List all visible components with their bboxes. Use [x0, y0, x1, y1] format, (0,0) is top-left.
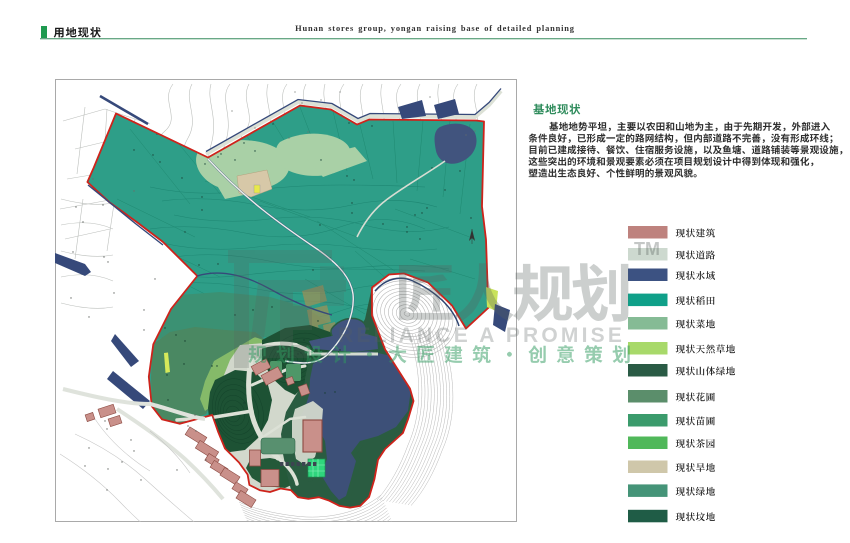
svg-text:RELIANCE A PROMISE: RELIANCE A PROMISE [338, 324, 625, 347]
svg-text:TM: TM [634, 239, 660, 259]
